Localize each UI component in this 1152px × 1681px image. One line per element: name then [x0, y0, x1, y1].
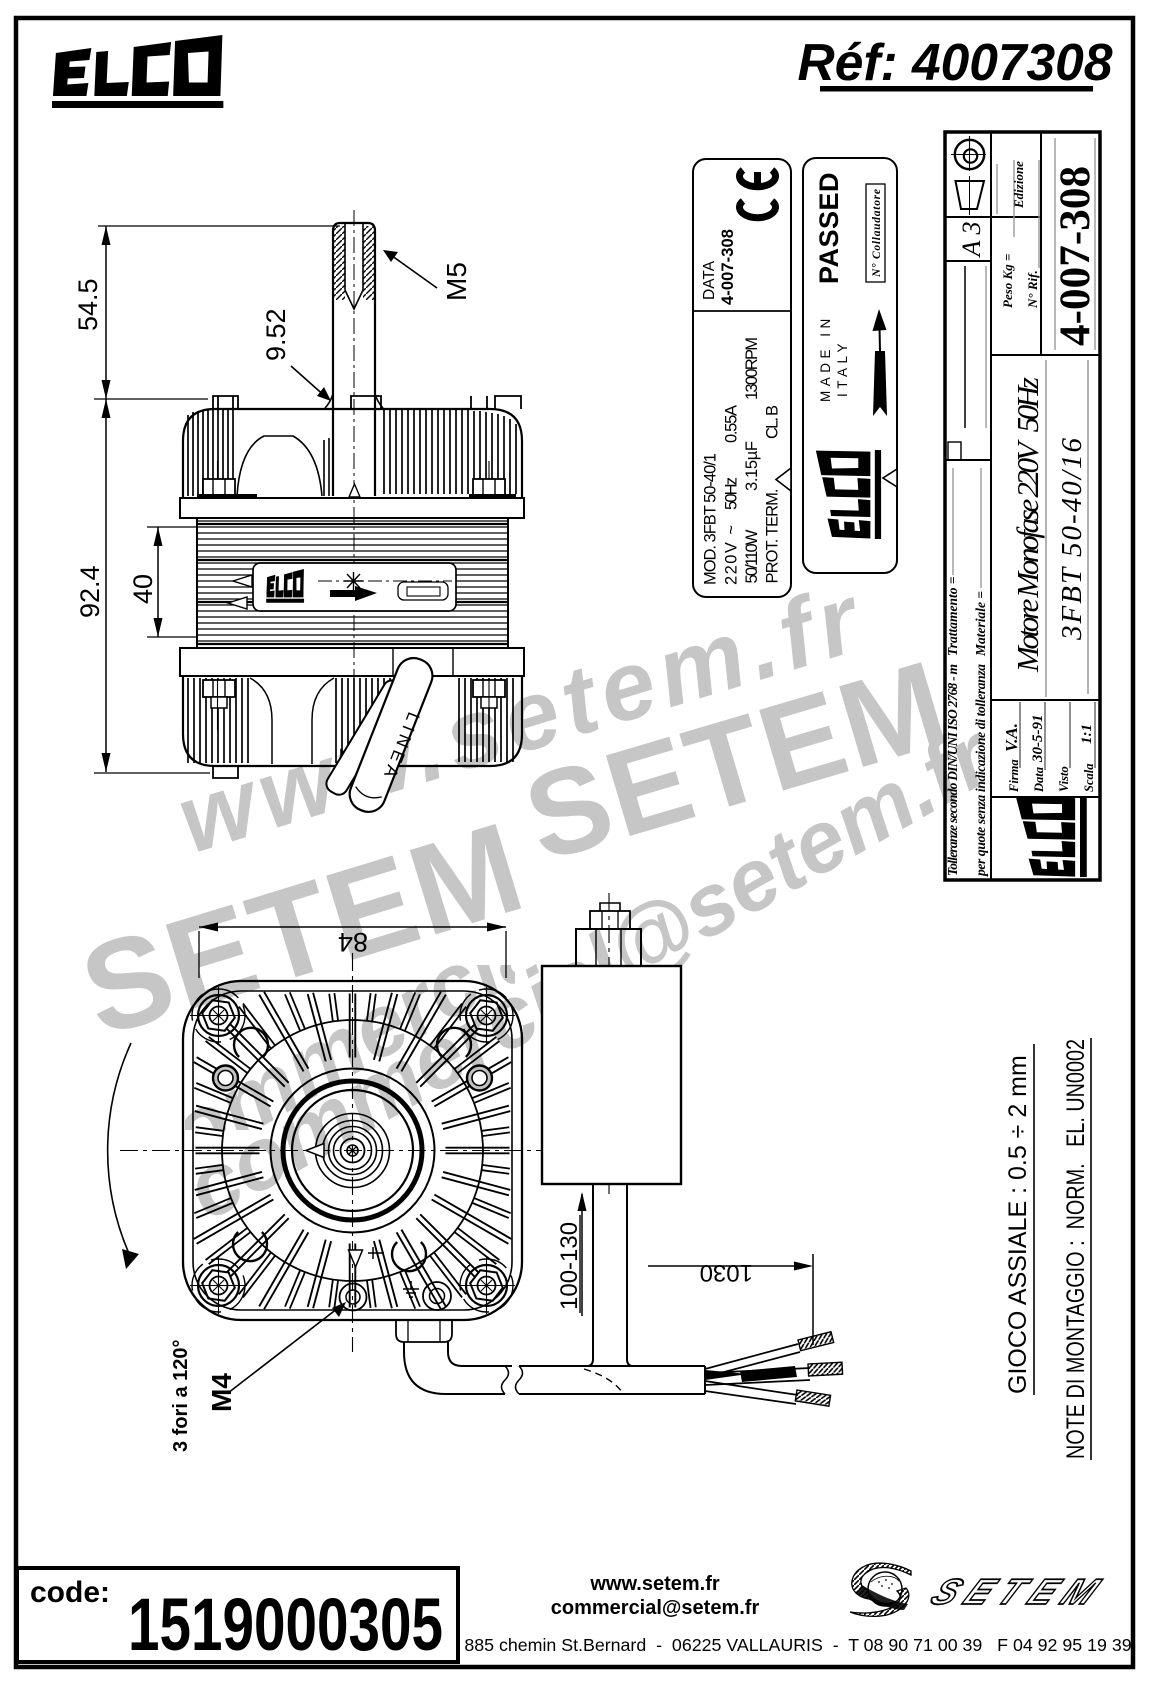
svg-text:3 fori a 120°: 3 fori a 120°	[170, 1339, 192, 1452]
svg-text:PASSED: PASSED	[814, 172, 844, 284]
svg-text:Réf: 4007308: Réf: 4007308	[798, 33, 1113, 91]
svg-text:3FBT 50-40/16: 3FBT 50-40/16	[1056, 438, 1088, 642]
svg-text:per quote senza indicazione di: per quote senza indicazione di tolleranz…	[973, 664, 988, 877]
svg-text:NOTE DI MONTAGGIO : NORM. E: NOTE DI MONTAGGIO : NORM. EL. UN0002	[1062, 1039, 1090, 1459]
svg-text:4-007-308: 4-007-308	[1052, 166, 1099, 346]
svg-text:commercial@setem.fr: commercial@setem.fr	[551, 1597, 760, 1619]
svg-text:Tolleranze secondo DIN/UNI ISO: Tolleranze secondo DIN/UNI ISO 2768 - m	[945, 664, 960, 876]
svg-text:1300RPM: 1300RPM	[743, 337, 761, 400]
svg-text:9.52: 9.52	[261, 308, 291, 361]
svg-text:MOD. 3FBT 50-40/1: MOD. 3FBT 50-40/1	[702, 453, 720, 585]
svg-text:4-007-308: 4-007-308	[719, 229, 737, 305]
svg-text:0.55A: 0.55A	[723, 405, 741, 443]
svg-text:30-5-91: 30-5-91	[1030, 715, 1046, 764]
svg-text:GIOCO ASSIALE : 0.5 ÷ 2 mm: GIOCO ASSIALE : 0.5 ÷ 2 mm	[1004, 1055, 1032, 1394]
svg-text:100-130: 100-130	[556, 1222, 583, 1310]
svg-text:N° Rif.: N° Rif.	[1025, 270, 1040, 309]
svg-text:Data: Data	[1032, 767, 1046, 793]
svg-text:885 chemin St.Bernard - 0622: 885 chemin St.Bernard - 06225 VALLAURIS …	[464, 1635, 1131, 1655]
svg-text:M4: M4	[206, 1373, 237, 1412]
svg-text:N° Collaudatore: N° Collaudatore	[871, 189, 883, 278]
svg-text:www.setem.fr: www.setem.fr	[589, 1573, 720, 1595]
svg-text:50/110W: 50/110W	[743, 529, 761, 583]
svg-text:1:1: 1:1	[1079, 724, 1095, 744]
svg-text:54.5: 54.5	[73, 278, 103, 331]
svg-text:220V ~: 220V ~	[723, 525, 741, 585]
svg-text:A 3: A 3	[957, 222, 986, 259]
svg-text:50Hz: 50Hz	[723, 477, 741, 510]
svg-text:Scala: Scala	[1082, 764, 1096, 792]
svg-text:Edizione: Edizione	[1011, 161, 1026, 209]
svg-text:PROT. TERM.: PROT. TERM.	[764, 489, 782, 584]
svg-text:ITALY: ITALY	[835, 339, 850, 397]
svg-text:Visto: Visto	[1057, 766, 1071, 792]
svg-text:V.A.: V.A.	[1002, 723, 1021, 752]
svg-text:code:: code:	[30, 1576, 110, 1609]
svg-text:92.4: 92.4	[75, 565, 105, 618]
svg-text:84: 84	[338, 927, 368, 957]
svg-text:MADE IN: MADE IN	[818, 314, 833, 402]
svg-text:CL. B: CL. B	[764, 405, 782, 439]
svg-text:Firma: Firma	[1007, 759, 1021, 793]
svg-text:40: 40	[128, 574, 158, 604]
svg-text:M5: M5	[441, 262, 472, 301]
svg-text:SETEM: SETEM	[923, 1573, 1115, 1613]
svg-text:DATA: DATA	[701, 260, 718, 300]
svg-text:Materiale =: Materiale =	[973, 591, 988, 657]
svg-text:Peso Kg =: Peso Kg =	[1000, 254, 1015, 308]
svg-text:3.15µF: 3.15µF	[743, 441, 761, 491]
svg-text:Trattamento =: Trattamento =	[945, 576, 960, 656]
svg-text:1519000305: 1519000305	[128, 1583, 443, 1666]
svg-text:1030: 1030	[700, 1259, 753, 1286]
svg-text:Motore Monofase 220V 50Hz: Motore Monofase 220V 50Hz	[1010, 377, 1045, 673]
